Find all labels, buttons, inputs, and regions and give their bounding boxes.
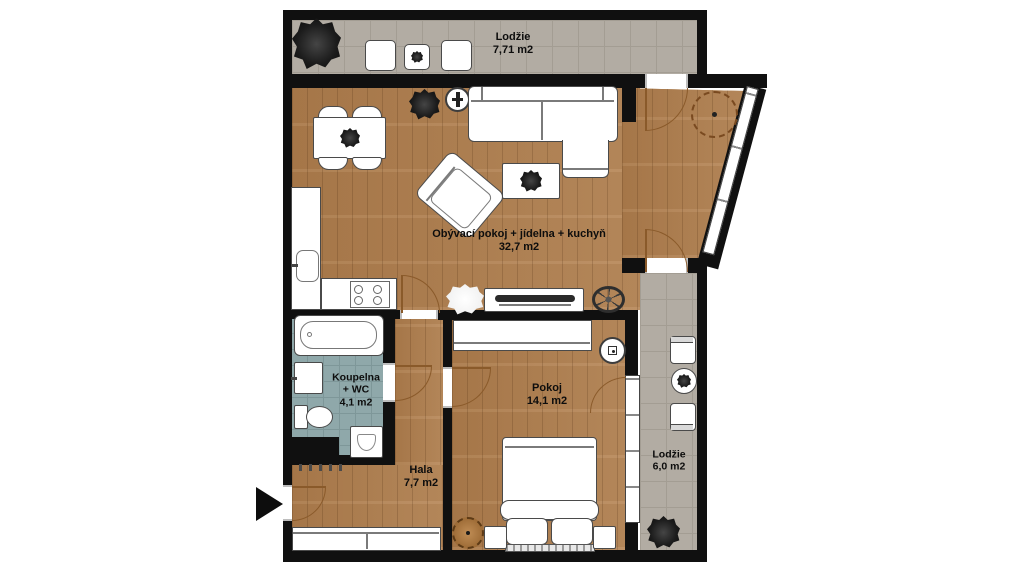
bathtub-icon <box>294 315 384 356</box>
room-name: Hala <box>409 464 432 476</box>
wall-bathroom-right-upper <box>383 312 395 363</box>
room-area: 7,7 m2 <box>404 477 438 489</box>
laundry-basket-icon <box>350 426 383 458</box>
room-label-living: Obývací pokoj + jídelna + kuchyň 32,7 m2 <box>432 228 606 254</box>
chair-icon <box>670 403 696 431</box>
window-bedroom-balcony <box>625 375 640 523</box>
chair-icon <box>670 336 696 364</box>
toilet-bowl-icon <box>306 406 333 428</box>
room-label-balcony-top: Lodžie 7,71 m2 <box>493 31 533 57</box>
wardrobe-icon <box>453 320 592 351</box>
fan-wheel-icon <box>592 286 625 313</box>
tree-icon <box>691 91 738 138</box>
pillow-icon <box>506 518 548 545</box>
chair-icon <box>365 40 396 71</box>
room-area: 32,7 m2 <box>499 241 539 253</box>
room-label-bathroom: Koupelna + WC 4,1 m2 <box>332 371 380 408</box>
bed-footboard-icon <box>505 544 595 552</box>
wall-top <box>283 10 707 20</box>
sink-icon <box>296 250 319 282</box>
room-name: Pokoj <box>532 382 562 394</box>
room-area: 6,0 m2 <box>653 461 686 473</box>
room-area: 7,71 m2 <box>493 44 533 56</box>
floor-plan: Lodžie 7,71 m2 Obývací pokoj + jídelna +… <box>0 0 1024 576</box>
room-label-hall: Hala 7,7 m2 <box>404 464 438 490</box>
wall-bedroom-right-lower <box>625 523 638 550</box>
pouf-dot <box>466 531 470 535</box>
room-area: 4,1 m2 <box>340 396 373 408</box>
bed-blanket-roll-icon <box>500 500 599 520</box>
closet-icon <box>292 527 441 551</box>
room-area: 14,1 m2 <box>527 395 567 407</box>
door-leaf <box>645 229 647 272</box>
door-leaf <box>395 365 432 367</box>
ceiling-light-icon <box>599 337 626 364</box>
door-leaf <box>401 275 403 313</box>
coat-hooks-icon <box>299 464 345 471</box>
nightstand-icon <box>593 526 616 549</box>
wall-balcony-right-north-b <box>688 258 707 273</box>
sofa-chaise-icon <box>562 140 609 178</box>
room-label-balcony-right: Lodžie 6,0 m2 <box>652 449 685 474</box>
wall-hall-bedroom-upper <box>443 312 452 367</box>
wall-stub-sofa <box>622 86 636 122</box>
room-name: Lodžie <box>652 449 685 461</box>
wall-hall-bedroom-lower <box>443 408 452 550</box>
room-name: Koupelna <box>332 371 380 383</box>
faucet-icon <box>292 264 298 267</box>
floor-lamp-icon <box>445 87 470 112</box>
chair-icon <box>441 40 472 71</box>
room-name: Lodžie <box>496 31 531 43</box>
room-name: Obývací pokoj + jídelna + kuchyň <box>432 228 606 240</box>
door-threshold-balcony-top <box>645 74 688 88</box>
duct-block <box>291 437 339 458</box>
door-threshold-entrance <box>283 485 292 521</box>
washer-icon <box>294 362 323 394</box>
tv-stand-icon <box>484 288 584 312</box>
pillow-icon <box>551 518 593 545</box>
nightstand-icon <box>484 526 507 549</box>
wall-right <box>697 258 707 562</box>
door-threshold-bathroom <box>383 363 395 402</box>
sofa-icon <box>468 86 618 142</box>
stove-icon <box>350 281 390 308</box>
wall-bottom <box>283 550 707 562</box>
entrance-arrow-icon <box>256 487 283 521</box>
door-threshold-bedroom <box>443 367 452 408</box>
fridge-counter-icon <box>291 187 321 310</box>
wall-bedroom-right-upper <box>625 312 638 377</box>
door-leaf <box>645 88 647 131</box>
room-name2: + WC <box>343 384 370 396</box>
door-leaf <box>292 486 326 488</box>
door-leaf <box>452 367 491 369</box>
wall-balcony-right-north-a <box>622 258 645 273</box>
room-label-bedroom: Pokoj 14,1 m2 <box>527 382 567 408</box>
